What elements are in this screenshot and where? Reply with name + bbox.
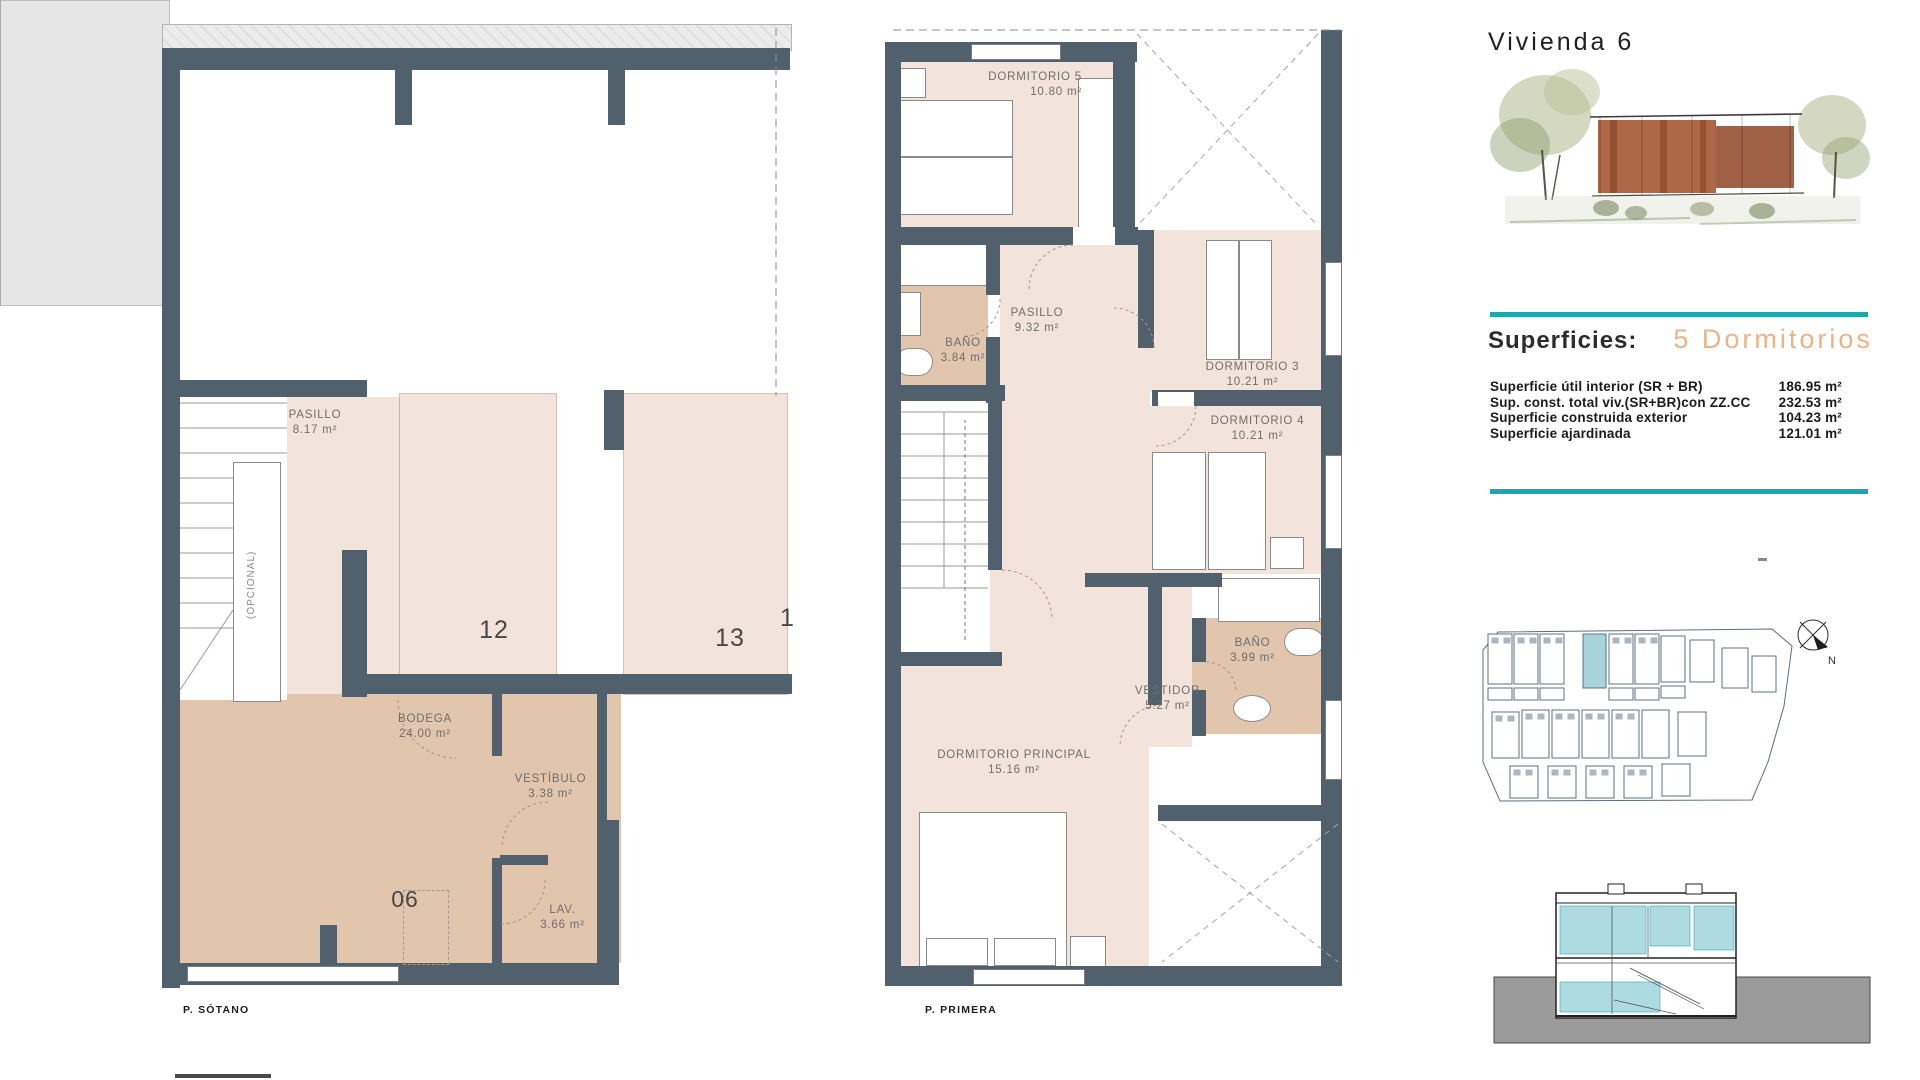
room-label-vestidor: VESTIDOR 5.27 m² (1115, 684, 1220, 713)
superficies-header: Superficies: 5 Dormitorios (1488, 324, 1873, 355)
pillow-b (994, 938, 1056, 966)
room-label-bano1: BAÑO 3.84 m² (913, 336, 1013, 365)
measurement-label: Sup. const. total viv.(SR+BR)con ZZ.CC (1490, 395, 1751, 411)
measurement-row: Superficie ajardinada 121.01 m² (1490, 426, 1842, 442)
wardrobe-dorm5 (1078, 78, 1114, 230)
room-label-dorm4: DORMITORIO 4 10.21 m² (1180, 414, 1335, 443)
elevator-shaft (233, 462, 281, 702)
room-name: LAV. (520, 903, 605, 918)
room-name: DORMITORIO 4 (1180, 414, 1335, 429)
room-label-vestibulo: VESTÍBULO 3.38 m² (498, 772, 603, 801)
room-area: 8.17 m² (275, 423, 355, 438)
room-area: 5.27 m² (1115, 699, 1220, 714)
bed-dorm4-b (1208, 452, 1266, 570)
room-label-principal: DORMITORIO PRINCIPAL 15.16 m² (925, 748, 1103, 777)
sink-2 (1233, 695, 1271, 722)
window-top (971, 44, 1061, 60)
room-area: 24.00 m² (360, 727, 490, 742)
nightstand-principal (1070, 936, 1106, 968)
window-right-1 (1325, 262, 1342, 356)
measurement-row: Superficie construida exterior 104.23 m² (1490, 410, 1842, 426)
page-title: Vivienda 6 (1488, 28, 1634, 57)
divider-top (1490, 312, 1868, 317)
room-name: DORMITORIO PRINCIPAL (925, 748, 1103, 763)
room-name: BAÑO (913, 336, 1013, 351)
storage-number-06: 06 (382, 886, 428, 913)
elevator-optional-note: (OPCIONAL) (246, 490, 257, 680)
parking-number-13: 13 (700, 624, 760, 653)
pasillo1-floor (1000, 245, 1150, 575)
plan-sheet: PASILLO 8.17 m² BODEGA 24.00 m² VESTÍBUL… (0, 0, 1920, 1080)
stairs-primera (898, 400, 990, 652)
room-name: PASILLO (987, 306, 1087, 321)
measurement-label: Superficie construida exterior (1490, 410, 1687, 426)
room-name: BAÑO (1200, 636, 1305, 651)
caption-sotano: P. SÓTANO (183, 1004, 249, 1016)
room-name: BODEGA (360, 712, 490, 727)
room-name: DORMITORIO 5 (930, 70, 1082, 85)
measurement-row: Superficie útil interior (SR + BR) 186.9… (1490, 379, 1842, 395)
superficies-label: Superficies: (1488, 327, 1637, 355)
caption-primera: P. PRIMERA (925, 1004, 997, 1016)
room-name: VESTIDOR (1115, 684, 1220, 699)
room-label-bano2: BAÑO 3.99 m² (1200, 636, 1305, 665)
room-area: 9.32 m² (987, 321, 1087, 336)
sidewalk-strip (162, 24, 792, 51)
parking-number-12: 12 (464, 616, 524, 645)
room-area: 3.38 m² (498, 787, 603, 802)
measurement-value: 104.23 m² (1779, 410, 1842, 426)
compass-n-label: N (1828, 655, 1836, 667)
window-right-3 (1325, 700, 1342, 780)
parking-number-next: 1 (780, 604, 800, 633)
measurement-label: Superficie ajardinada (1490, 426, 1631, 442)
bed-dorm3-b (1239, 240, 1272, 360)
room-area: 10.21 m² (1180, 429, 1335, 444)
parking-12-floor (400, 394, 556, 694)
measurement-row: Sup. const. total viv.(SR+BR)con ZZ.CC 2… (1490, 395, 1842, 411)
divider-bottom (1490, 489, 1868, 494)
basement-window (187, 966, 399, 982)
window-right-2 (1325, 455, 1342, 549)
measurements-table: Superficie útil interior (SR + BR) 186.9… (1490, 379, 1842, 441)
room-name: DORMITORIO 3 (1175, 360, 1330, 375)
room-label-bodega: BODEGA 24.00 m² (360, 712, 490, 741)
room-area: 3.66 m² (520, 918, 605, 933)
bed-dorm5-b (893, 157, 1013, 215)
bed-dorm4-a (1152, 452, 1206, 570)
room-label-pasillo-sotano: PASILLO 8.17 m² (275, 408, 355, 437)
room-name: PASILLO (275, 408, 355, 423)
bathtub (897, 238, 989, 286)
bed-dorm5-a (893, 100, 1013, 157)
room-label-pasillo-primera: PASILLO 9.32 m² (987, 306, 1087, 335)
desk-dorm4 (1270, 537, 1304, 569)
measurement-value: 232.53 m² (1779, 395, 1842, 411)
bedrooms-label: 5 Dormitorios (1673, 324, 1873, 355)
measurement-value: 121.01 m² (1779, 426, 1842, 442)
measurement-label: Superficie útil interior (SR + BR) (1490, 379, 1703, 395)
pillow-a (926, 938, 988, 966)
room-area: 3.84 m² (913, 351, 1013, 366)
closet-strip (1218, 578, 1320, 622)
bed-dorm3-a (1206, 240, 1239, 360)
room-label-dorm3: DORMITORIO 3 10.21 m² (1175, 360, 1330, 389)
room-area: 10.80 m² (930, 85, 1082, 100)
window-bottom (973, 969, 1085, 985)
room-area: 3.99 m² (1200, 651, 1305, 666)
room-label-dorm5: DORMITORIO 5 10.80 m² (930, 70, 1082, 99)
measurement-value: 186.95 m² (1779, 379, 1842, 395)
room-area: 10.21 m² (1175, 375, 1330, 390)
room-area: 15.16 m² (925, 763, 1103, 778)
room-name: VESTÍBULO (498, 772, 603, 787)
room-label-lav: LAV. 3.66 m² (520, 903, 605, 932)
small-mark (1758, 558, 1767, 561)
